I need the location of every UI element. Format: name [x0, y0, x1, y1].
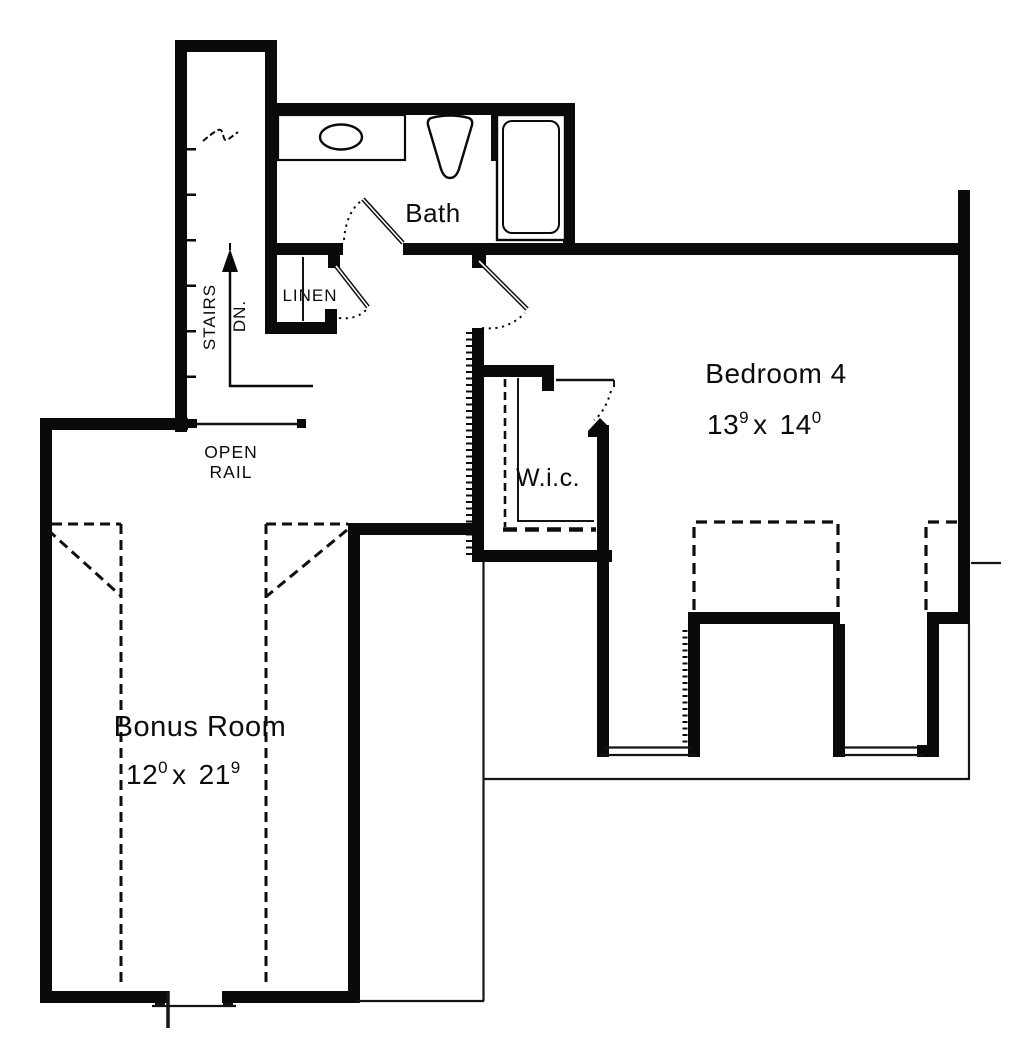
bath-door — [344, 199, 403, 243]
wic-door-jamb — [588, 418, 609, 437]
open-rail-label-line1: OPEN — [204, 442, 258, 462]
stairs-break-squiggle — [203, 130, 238, 141]
bedroom4-dim-a: 13 — [707, 409, 739, 440]
wall-bedroom-top — [403, 243, 970, 255]
bedroom-door — [479, 261, 527, 328]
bedroom4-dimensions: 139x140 — [707, 408, 822, 440]
thin-lines — [188, 257, 1001, 1001]
open-rail-post-left — [188, 419, 197, 428]
wic-door — [588, 391, 611, 437]
wall-stairs-left — [175, 40, 187, 432]
bonus-kneewall-right — [266, 524, 348, 985]
bath-door-swing-arc — [344, 201, 361, 240]
bath-door-leaf-core — [363, 199, 403, 243]
bedroom4-dim-sep: x — [753, 409, 768, 440]
bedroom4-dim-b-sup: 0 — [812, 408, 822, 427]
linen-label: LINEN — [282, 286, 337, 305]
bonus-dim-b-sup: 9 — [231, 758, 241, 777]
bonus-dim-sep: x — [172, 759, 187, 790]
wic-door-swing-arc — [594, 391, 611, 420]
floor-plan: Bath Bedroom 4 139x140 W.i.c. Bonus Room… — [0, 0, 1024, 1053]
wall-dormer2-left — [833, 624, 845, 757]
bonus-room-label: Bonus Room — [114, 711, 287, 743]
wall-stairs-top — [175, 40, 277, 52]
bedroom4-label: Bedroom 4 — [705, 358, 846, 389]
bath-label: Bath — [405, 198, 461, 228]
bonus-dim-a: 12 — [126, 759, 158, 790]
wall-hall — [348, 523, 484, 535]
wall-wic-corner — [542, 377, 554, 391]
bedroom-door-leaf-core — [479, 261, 527, 309]
wall-wic-bottom — [472, 550, 612, 562]
stairs-direction-arrow-head — [222, 249, 238, 272]
bedroom-roofline-left — [694, 522, 838, 610]
wall-bedroom-left — [597, 425, 609, 757]
wall-wic-top — [484, 365, 554, 377]
bedroom-door-swing-arc — [482, 313, 525, 328]
wall-dormer-mid-top — [693, 612, 840, 624]
wall-bonus-top — [40, 418, 188, 430]
wall-dormer1-right — [688, 612, 700, 757]
bonus-dim-b: 21 — [199, 759, 231, 790]
wic-label: W.i.c. — [516, 464, 580, 492]
linen-door-leaf-core — [336, 266, 368, 307]
wall-stairs-right — [265, 52, 277, 333]
toilet — [428, 116, 472, 179]
wall-linen-bottom — [265, 322, 337, 334]
stairs-symbols — [203, 130, 313, 386]
windows — [152, 748, 923, 1029]
wall-dormer2-right — [927, 612, 939, 757]
open-rail-post-right — [297, 419, 306, 428]
oval-sink — [320, 125, 362, 150]
stairs-dn-label: DN. — [230, 300, 249, 332]
wall-linen-jamb-bottom — [325, 309, 337, 322]
bonus-dim-a-sup: 0 — [158, 758, 168, 777]
open-rail-label-line2: RAIL — [210, 462, 253, 482]
bedroom4-dim-a-sup: 9 — [739, 408, 749, 427]
toilet-tub-divider-wall — [491, 115, 497, 161]
bedroom-roofline-right — [926, 522, 958, 610]
bathtub-inner — [503, 121, 559, 233]
wall-dormer-right-top — [927, 612, 970, 624]
wall-bonus-bottom-right — [222, 991, 360, 1003]
dashed-roof-lines — [48, 379, 958, 985]
wall-bonus-left — [40, 418, 52, 1003]
linen-door — [336, 266, 368, 318]
wall-bath-top — [265, 103, 575, 115]
wall-linen-top — [277, 243, 343, 255]
bedroom4-dim-b: 14 — [780, 409, 812, 440]
wall-bedroom-right — [958, 190, 970, 624]
bonus-kneewall-left — [48, 524, 121, 985]
bonus-room-dimensions: 120x219 — [126, 758, 241, 790]
wall-bonus-right — [348, 523, 360, 1003]
stairs-label: STAIRS — [200, 284, 219, 350]
floor-plan-drawing: Bath Bedroom 4 139x140 W.i.c. Bonus Room… — [0, 0, 1024, 1053]
linen-door-swing-arc — [339, 310, 366, 318]
wall-bonus-bottom-left — [40, 991, 168, 1003]
